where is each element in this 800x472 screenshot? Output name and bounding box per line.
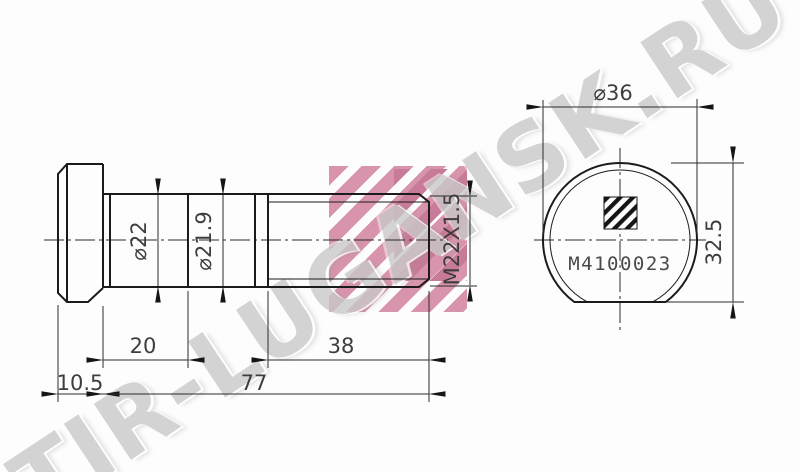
head-diameter-label: ⌀36 (593, 81, 632, 105)
dimension-shank-length: 20 (103, 291, 188, 368)
dimension-thread-spec: M22X1.5 (430, 193, 477, 286)
marking-hatch-square (604, 197, 637, 229)
shank-length-label: 20 (130, 334, 157, 358)
overall-length-label: 77 (241, 371, 268, 395)
dimension-overall-length: 77 (103, 371, 429, 395)
dimension-thread-length: 38 (268, 291, 429, 402)
pilot-diameter-label: ⌀21.9 (192, 211, 216, 270)
bolt-head-outline (58, 164, 103, 302)
dimension-head-thickness: 10.5 (57, 305, 104, 402)
thread-spec-label: M22X1.5 (440, 193, 464, 286)
part-number-text: M4100023 (568, 253, 672, 275)
dimensions: ⌀22 ⌀21.9 M22X1.5 20 (57, 81, 744, 402)
shank-diameter-label: ⌀22 (127, 221, 151, 260)
thread-length-label: 38 (328, 334, 355, 358)
head-height-label: 32.5 (702, 219, 726, 266)
head-thickness-label: 10.5 (57, 371, 104, 395)
technical-drawing: M4100023 ⌀22 ⌀21.9 M22X1.5 (0, 0, 800, 472)
side-view (58, 164, 429, 302)
drawing-canvas: TIR-LUGANSK.RU (0, 0, 800, 472)
dimension-head-height: 32.5 (667, 163, 744, 302)
